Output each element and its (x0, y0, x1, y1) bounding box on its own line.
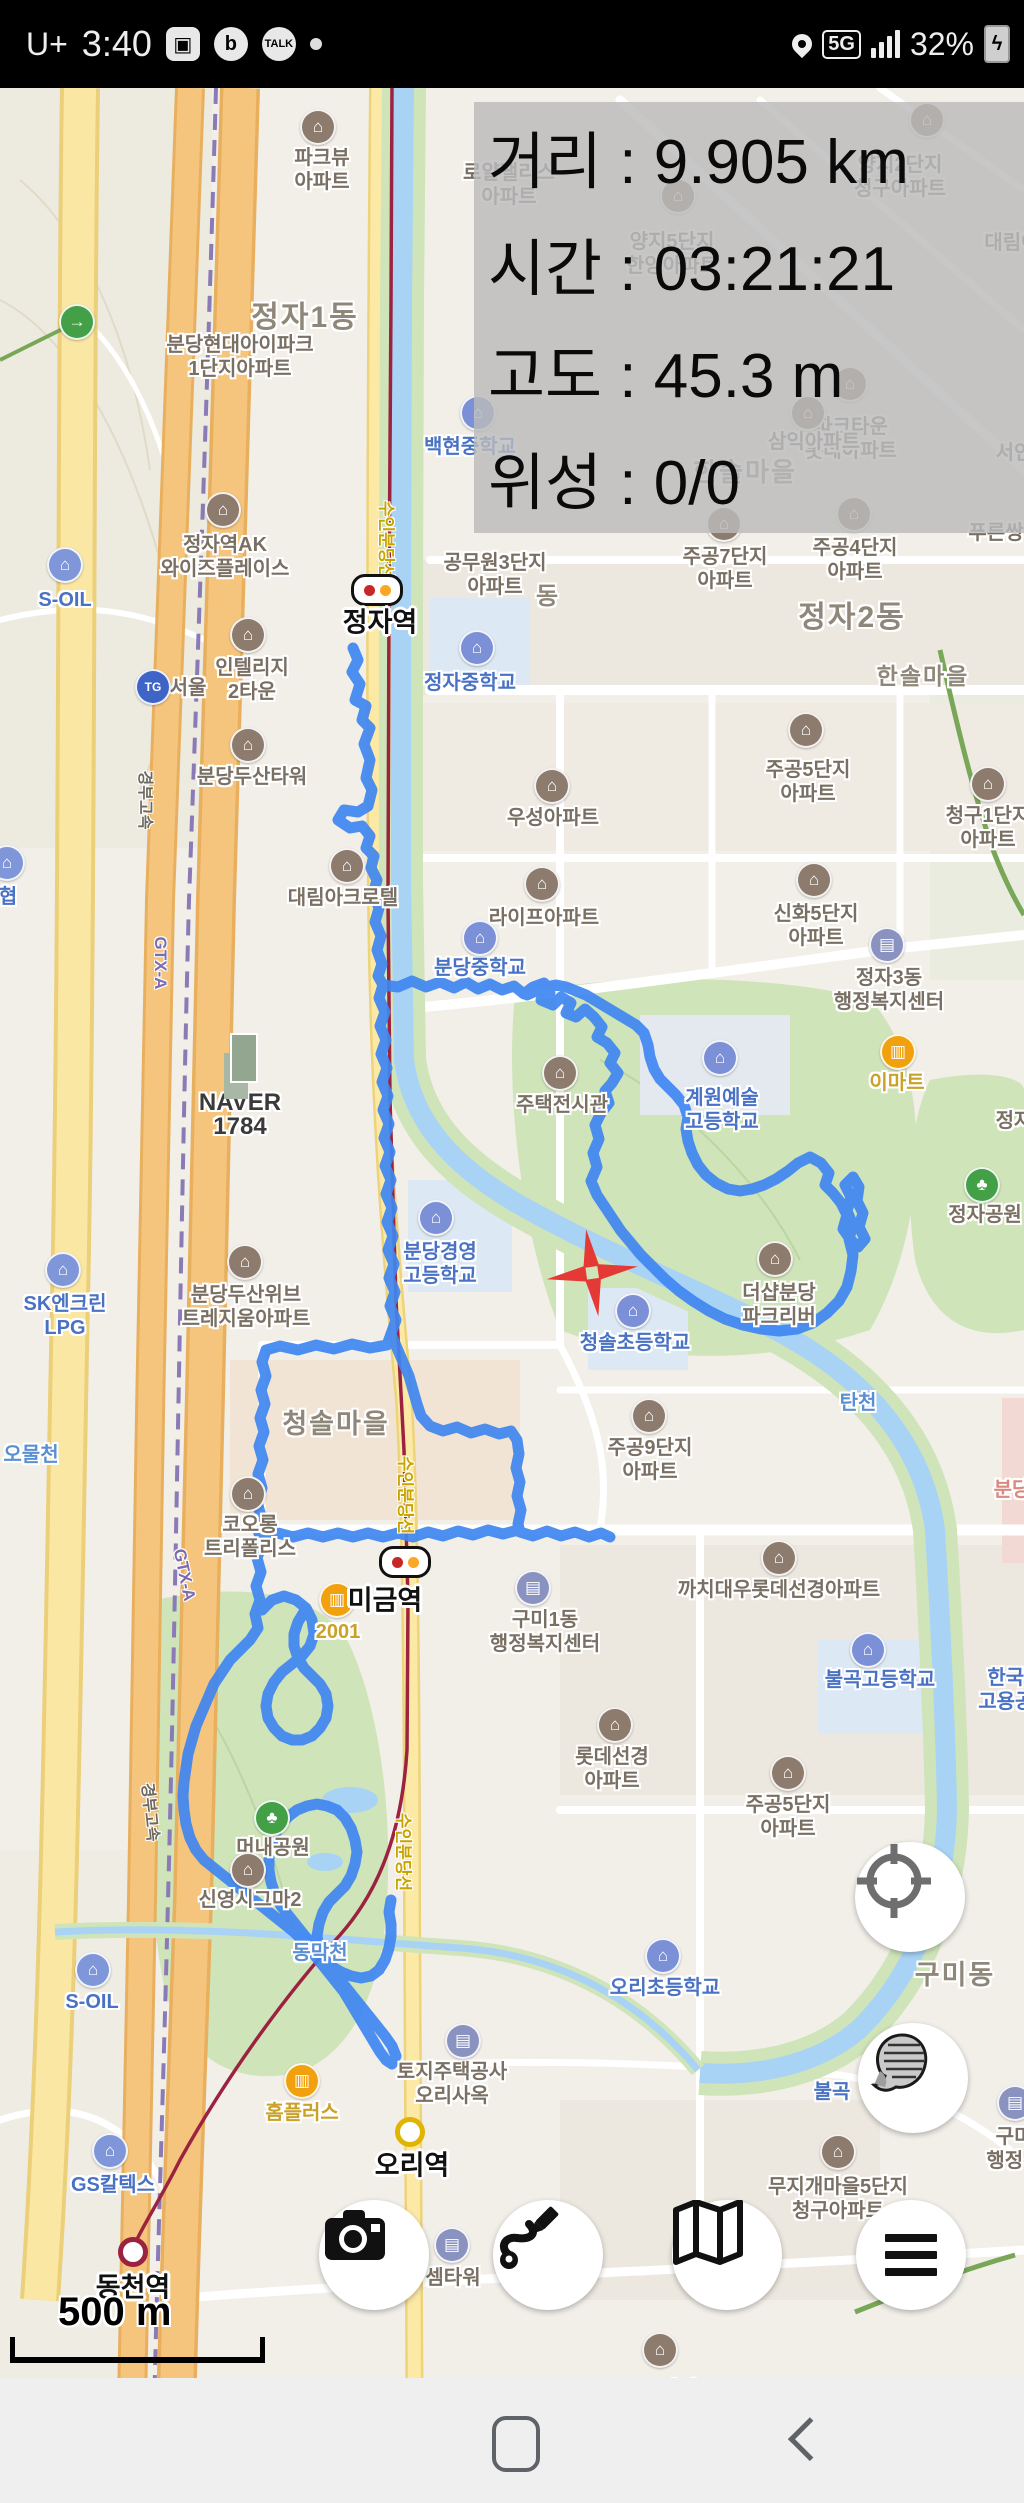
apt-poi-icon: ⌂ (761, 1540, 797, 1576)
map-label: 토지주택공사오리사옥 (397, 2060, 507, 2108)
map-label: 탄천 (840, 1391, 877, 1415)
map-label: 오리초등학교 (610, 1976, 720, 2000)
map-label: 홈플러스 (265, 2101, 339, 2125)
map-label: 주공5단지아파트 (766, 758, 851, 806)
route-draw-button[interactable] (493, 2200, 603, 2310)
apt-poi-icon: ⌂ (329, 848, 365, 884)
station-name: 정자역 (343, 601, 418, 640)
way-poi-icon: → (59, 304, 95, 340)
gov-poi-icon: ▤ (445, 2023, 481, 2059)
apt-poi-icon: ⌂ (524, 866, 560, 902)
menu-button[interactable] (856, 2200, 966, 2310)
map-label: 코오롱트리폴리스 (204, 1513, 296, 1561)
gov-poi-icon: ▤ (869, 927, 905, 963)
map-label: 구미행정복 (986, 2125, 1024, 2173)
sch-poi-icon: ⌂ (418, 1200, 454, 1236)
map-scale: 500 m (10, 2290, 265, 2363)
gas-poi-icon: ⌂ (45, 1252, 81, 1288)
gps-target-button[interactable] (855, 1842, 965, 1952)
district-label: 청솔마을 (282, 1412, 389, 1436)
overlay-stat-row: 시간 : 03:21:21 (474, 209, 1024, 316)
sch-poi-icon: ⌂ (459, 630, 495, 666)
route-draw-icon (493, 2200, 567, 2274)
apt-poi-icon: ⌂ (796, 862, 832, 898)
map-label: 신영시그마2 (198, 1888, 301, 1912)
apt-poi-icon: ⌂ (230, 617, 266, 653)
map-label: 신화5단지아파트 (774, 902, 859, 950)
camera-button[interactable] (319, 2200, 429, 2310)
map-label: 인텔리지2타운 (215, 656, 289, 704)
tg-poi-icon: TG (135, 669, 171, 705)
apt-poi-icon: ⌂ (205, 492, 241, 528)
map-label: 협 (0, 885, 17, 909)
apt-poi-icon: ⌂ (534, 768, 570, 804)
map-label: 더샵분당파크리버 (742, 1281, 816, 1329)
map-label: 2001 (316, 1620, 361, 1644)
map-label: 구미1동행정복지센터 (490, 1608, 600, 1656)
home-button[interactable] (492, 2416, 540, 2472)
5g-network-icon: 5G (822, 30, 861, 59)
battery-percent: 32% (910, 26, 974, 63)
apt-poi-icon: ⌂ (300, 109, 336, 145)
map-label: 대림아크로텔 (288, 886, 398, 910)
apt-poi-icon: ⌂ (631, 1398, 667, 1434)
map-label: 동막천 (292, 1941, 347, 1965)
sch-poi-icon: ⌂ (850, 1632, 886, 1668)
map-label: 한국장고용공단 (978, 1666, 1024, 1714)
sch-poi-icon: ⌂ (645, 1938, 681, 1974)
road-name-label: 수인분당선 (376, 501, 401, 579)
road-name-label: GTX-A (150, 937, 170, 990)
map-label: S-OIL (38, 588, 91, 612)
overlay-stat-row: 고도 : 45.3 m (474, 316, 1024, 423)
map-label: 분당두산위브트레지움아파트 (182, 1283, 311, 1331)
apt-poi-icon: ⌂ (770, 1755, 806, 1791)
camera-icon (319, 2200, 391, 2272)
naver-building-icon (230, 1033, 258, 1083)
map-label: SK엔크린LPG (24, 1292, 107, 1340)
apt-poi-icon: ⌂ (820, 2134, 856, 2170)
clock: 3:40 (82, 23, 152, 65)
map-label: 불곡 (814, 2080, 851, 2104)
apt-poi-icon: ⌂ (227, 1244, 263, 1280)
park-poi-icon: ♣ (254, 1800, 290, 1836)
map-label: 정자공원 (948, 1203, 1022, 1227)
park-poi-icon: ♣ (964, 1167, 1000, 1203)
scale-bar (10, 2337, 265, 2363)
apt-poi-icon: ⌂ (642, 2332, 678, 2368)
map-label: 이마트 (869, 1071, 924, 1095)
band-icon: b (214, 27, 248, 61)
map-label: NAVER1784 (199, 1091, 281, 1139)
district-label: 동 (536, 585, 560, 609)
map-label: GS칼텍스 (71, 2173, 155, 2197)
map-label: 청솔초등학교 (580, 1331, 690, 1355)
location-pin-icon (788, 30, 816, 58)
status-bar: U+ 3:40 ▣ b TALK 5G 32% ϟ (0, 0, 1024, 88)
apt-poi-icon: ⌂ (230, 1852, 266, 1888)
hamburger-menu-icon (885, 2225, 937, 2285)
map-label: 서울 (170, 676, 207, 700)
kakaotalk-icon: TALK (262, 27, 296, 61)
map-label: 분당두산타워 (197, 765, 307, 789)
station-name: 미금역 (348, 1579, 423, 1618)
map-label: 분당 (994, 1478, 1024, 1502)
map-label: 라이프아파트 (489, 906, 599, 930)
mapview-button[interactable] (672, 2200, 782, 2310)
map-label: 우성아파트 (507, 806, 599, 830)
map-label: 오물천 (3, 1443, 58, 1467)
signal-bars-icon (871, 30, 900, 58)
map-label: 까치대우롯데선경아파트 (678, 1578, 880, 1602)
carrier-label: U+ (26, 26, 68, 63)
map-label: 분당현대아이파크1단지아파트 (166, 333, 313, 381)
map-layers-icon (858, 2023, 936, 2101)
overlay-stat-row: 위성 : 0/0 (474, 423, 1024, 530)
map-label: 파크뷰아파트 (294, 146, 349, 194)
map-label: 공무원3단지아파트 (443, 551, 546, 599)
map-label: 분당경영고등학교 (403, 1240, 477, 1288)
station-name: 오리역 (375, 2144, 450, 2183)
apt-poi-icon: ⌂ (230, 727, 266, 763)
sch-poi-icon: ⌂ (462, 920, 498, 956)
folded-map-icon (672, 2200, 744, 2266)
map-label: 분당중학교 (434, 956, 526, 980)
app-screen: U+ 3:40 ▣ b TALK 5G 32% ϟ (0, 0, 1024, 2503)
gov-poi-icon: ▤ (515, 1570, 551, 1606)
map-label: 주공9단지아파트 (608, 1436, 693, 1484)
stats-overlay: 거리 : 9.905 km시간 : 03:21:21고도 : 45.3 m위성 … (474, 102, 1024, 533)
notification-dot (310, 38, 322, 50)
gov-poi-icon: ▤ (434, 2227, 470, 2263)
road-name-label: 수인분당선 (393, 1813, 418, 1891)
map-label: 셈타워 (425, 2266, 480, 2290)
apt-poi-icon: ⌂ (597, 1707, 633, 1743)
apt-poi-icon: ⌂ (970, 766, 1006, 802)
district-label: 한솔마을 (877, 664, 970, 688)
mart-poi-icon: ▥ (284, 2063, 320, 2099)
station-marker (395, 2117, 425, 2147)
gps-target-icon (855, 1842, 933, 1920)
district-label: 정자1동 (251, 306, 359, 330)
map-label: 계원예술고등학교 (685, 1086, 759, 1134)
map-label: 불곡고등학교 (825, 1668, 935, 1692)
map-label: 롯데선경아파트 (575, 1745, 649, 1793)
map-label: 주공5단지아파트 (746, 1793, 831, 1841)
map-label: 정자중학교 (424, 671, 516, 695)
map-label: 정자 (996, 1109, 1024, 1133)
map-label: S-OIL (65, 1990, 118, 2014)
map-label: 정자역AK와이즈플레이스 (161, 533, 290, 581)
gas-poi-icon: ⌂ (92, 2133, 128, 2169)
district-label: 구미동 (915, 1963, 996, 1987)
map-layers-button[interactable] (858, 2023, 968, 2133)
map-label: 정자3동행정복지센터 (834, 966, 944, 1014)
android-nav-bar (0, 2378, 1024, 2503)
apt-poi-icon: ⌂ (788, 712, 824, 748)
gas-poi-icon: ⌂ (75, 1952, 111, 1988)
sch-poi-icon: ⌂ (702, 1040, 738, 1076)
back-button (788, 2417, 832, 2461)
map-label: 주공7단지아파트 (683, 545, 768, 593)
map-label: 청구1단지아파트 (946, 804, 1024, 852)
apt-poi-icon: ⌂ (230, 1476, 266, 1512)
battery-charging-icon: ϟ (984, 25, 1010, 63)
overlay-stat-row: 거리 : 9.905 km (474, 102, 1024, 209)
scale-text: 500 m (58, 2290, 265, 2335)
station-marker (379, 1546, 431, 1578)
gallery-icon: ▣ (166, 27, 200, 61)
apt-poi-icon: ⌂ (757, 1241, 793, 1277)
road-name-label: 경부고속 (135, 771, 159, 830)
district-label: 정자2동 (798, 606, 906, 630)
map-label: 주공4단지아파트 (813, 536, 898, 584)
apt-poi-icon: ⌂ (542, 1055, 578, 1091)
road-name-label: 수인분당선 (395, 1456, 420, 1534)
station-marker (118, 2237, 148, 2267)
map-label: 주택전시관 (516, 1093, 608, 1117)
gas-poi-icon: ⌂ (47, 547, 83, 583)
mart-poi-icon: ▥ (880, 1034, 916, 1070)
